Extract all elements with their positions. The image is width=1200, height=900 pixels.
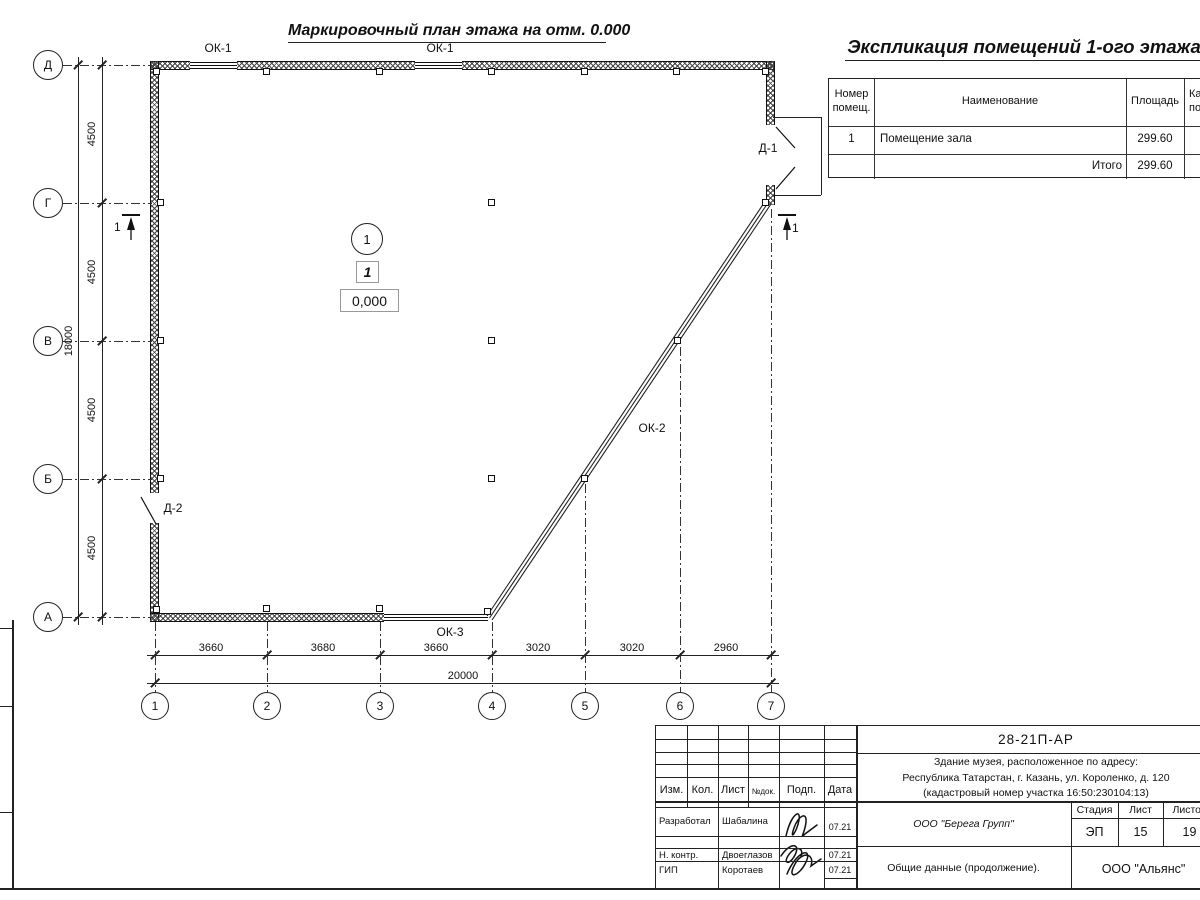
axis-line-b — [63, 479, 152, 480]
column-square — [488, 337, 495, 344]
axis-letter: А — [44, 610, 52, 624]
column-square — [153, 68, 160, 75]
dim-label: 3680 — [303, 642, 343, 654]
rev-header: Кол. — [687, 784, 718, 796]
rev-header: Лист — [718, 784, 748, 796]
address-line: (кадастровый номер участка 16:50:230104:… — [923, 787, 1149, 799]
window-label-ok3: ОК-3 — [428, 625, 472, 639]
address-line: Республика Татарстан, г. Казань, ул. Кор… — [902, 772, 1169, 784]
stage-label: Стадия — [1071, 804, 1118, 816]
doc-number: 28-21П-АР — [856, 732, 1200, 747]
column-square — [581, 475, 588, 482]
dim-label: 3660 — [416, 642, 456, 654]
axis-number: 6 — [677, 699, 684, 713]
room-number: 1 — [363, 232, 370, 247]
dim-label: 4500 — [86, 252, 98, 292]
tb-grid-line — [656, 764, 856, 765]
vestibule-wall — [821, 117, 822, 195]
column-square — [488, 475, 495, 482]
grid-line-2 — [267, 622, 268, 692]
glazed-wall-ok2 — [487, 200, 771, 620]
axis-bubble-row: Г — [33, 188, 63, 218]
grid-line-3 — [380, 622, 381, 692]
axis-line-v — [63, 341, 152, 342]
elevation-value: 0,000 — [352, 293, 387, 309]
doc-title: Общие данные (продолжение). — [856, 862, 1071, 874]
wall-bottom-segment — [150, 613, 384, 622]
signer-role: ГИП — [659, 865, 718, 876]
tb-grid-line — [656, 848, 856, 849]
column-square — [376, 68, 383, 75]
elevation-mark: 0,000 — [340, 289, 399, 312]
table-grid-line — [829, 126, 1200, 127]
col-header-area: Площадь — [1126, 95, 1184, 107]
rev-header: Изм. — [656, 784, 687, 796]
wall-top-segment — [462, 61, 774, 70]
axis-bubble-row: Б — [33, 464, 63, 494]
col-header-number: Номерпомещ. — [829, 87, 874, 115]
total-label: Итого — [874, 160, 1122, 172]
wall-left-segment — [150, 61, 159, 493]
window-label-ok1-b: ОК-1 — [418, 41, 462, 55]
column-square — [157, 199, 164, 206]
total-area: 299.60 — [1126, 160, 1184, 172]
dim-label: 3020 — [518, 642, 558, 654]
column-square — [157, 337, 164, 344]
column-square — [488, 199, 495, 206]
dim-line-left-total — [78, 57, 79, 625]
contractor-org: ООО "Альянс" — [1071, 862, 1200, 876]
rev-header: №док. — [748, 787, 779, 796]
signer-name: Двоеглазов — [722, 850, 779, 861]
column-square — [153, 606, 160, 613]
sheets-label: Листов — [1163, 804, 1200, 816]
dim-label: 2960 — [706, 642, 746, 654]
axis-bubble-col: 7 — [757, 692, 785, 720]
dim-label: 4500 — [86, 528, 98, 568]
axis-bubble-col: 6 — [666, 692, 694, 720]
column-square — [762, 68, 769, 75]
column-square — [581, 68, 588, 75]
axis-number: 3 — [377, 699, 384, 713]
axis-number: 7 — [768, 699, 775, 713]
door-d1-leaf — [776, 167, 795, 189]
tb-grid-line — [656, 807, 856, 808]
project-address: Здание музея, расположенное по адресу: Р… — [861, 755, 1200, 802]
stage-value: ЭП — [1071, 825, 1118, 839]
room-row-number: 1 — [829, 133, 874, 145]
room-number-boxed: 1 — [364, 264, 372, 280]
dim-label-total: 18000 — [63, 318, 75, 364]
frame-line — [12, 620, 14, 889]
grid-line-6 — [680, 347, 681, 692]
window-label-ok2: ОК-2 — [630, 421, 674, 435]
dim-label: 4500 — [86, 390, 98, 430]
tb-grid-line — [656, 861, 856, 862]
dim-line-bottom-segments — [147, 655, 779, 656]
axis-bubble-row: А — [33, 602, 63, 632]
tb-grid-line — [656, 836, 856, 837]
section-mark-label-left: 1 — [114, 220, 121, 234]
address-line: Здание музея, расположенное по адресу: — [934, 756, 1138, 768]
signer-role: Разработал — [659, 816, 718, 827]
col-header-name: Наименование — [874, 95, 1126, 107]
column-square — [484, 608, 491, 615]
signer-name: Шабалина — [722, 816, 779, 827]
axis-number: 4 — [489, 699, 496, 713]
column-square — [376, 605, 383, 612]
axis-bubble-row: Д — [33, 50, 63, 80]
tb-grid-line — [856, 846, 1200, 847]
signer-date: 07.21 — [824, 850, 856, 860]
tb-grid-line — [856, 753, 1200, 754]
dim-line-bottom-total — [147, 683, 779, 684]
axis-letter: Д — [44, 58, 52, 72]
frame-tick — [0, 628, 12, 629]
axis-bubble-row: В — [33, 326, 63, 356]
column-square — [673, 68, 680, 75]
sheet-label: Лист — [1118, 804, 1163, 816]
window-ok1-a — [190, 62, 237, 69]
dim-label: 4500 — [86, 114, 98, 154]
tb-grid-line — [824, 878, 856, 879]
title-block: Изм. Кол. Лист №док. Подп. Дата Разработ… — [655, 725, 1200, 889]
tb-grid-line — [1071, 818, 1200, 819]
window-ok3 — [384, 614, 488, 621]
grid-line-5 — [585, 484, 586, 692]
door-d2-leaf — [141, 497, 156, 524]
signer-name: Коротаев — [722, 865, 779, 876]
room-row-name: Помещение зала — [880, 133, 1120, 145]
tb-grid-line — [779, 726, 780, 890]
dim-label-total: 20000 — [438, 670, 488, 682]
explication-table: Номерпомещ. Наименование Площадь Капо 1 … — [828, 78, 1200, 178]
vestibule-wall — [773, 195, 821, 196]
tb-grid-line — [656, 739, 856, 740]
table-grid-line — [829, 154, 1200, 155]
column-square — [263, 605, 270, 612]
vestibule-wall — [773, 117, 821, 118]
column-square — [488, 68, 495, 75]
window-label-ok1-a: ОК-1 — [196, 41, 240, 55]
frame-tick — [0, 706, 12, 707]
axis-letter: В — [44, 334, 52, 348]
signer-date: 07.21 — [824, 865, 856, 875]
dim-label: 3020 — [612, 642, 652, 654]
door-label-d2: Д-2 — [155, 501, 191, 515]
design-org: ООО "Берега Групп" — [856, 818, 1071, 830]
door-label-d1: Д-1 — [750, 141, 786, 155]
rev-header: Подп. — [779, 784, 824, 796]
axis-bubble-col: 1 — [141, 692, 169, 720]
axis-number: 1 — [152, 699, 159, 713]
section-mark-label-right: 1 — [792, 221, 799, 235]
drawing-sheet: Маркировочный план этажа на отм. 0.000 Э… — [0, 0, 1200, 900]
axis-number: 2 — [264, 699, 271, 713]
explication-title: Экспликация помещений 1-ого этажа — [845, 36, 1200, 61]
axis-letter: Г — [45, 196, 52, 210]
frame-tick — [0, 812, 12, 813]
rev-header: Дата — [824, 784, 856, 796]
signer-date: 07.21 — [824, 822, 856, 832]
table-grid-line — [1184, 79, 1185, 179]
plan-title: Маркировочный план этажа на отм. 0.000 — [288, 22, 606, 43]
axis-letter: Б — [44, 472, 52, 486]
column-square — [762, 199, 769, 206]
door-leaf-lines — [141, 127, 795, 524]
col-header-category: Капо — [1189, 87, 1200, 115]
room-row-area: 299.60 — [1126, 133, 1184, 145]
signer-role: Н. контр. — [659, 850, 718, 861]
grid-line-4 — [492, 622, 493, 692]
grid-line-7 — [771, 209, 772, 692]
axis-bubble-col: 5 — [571, 692, 599, 720]
axis-bubble-col: 4 — [478, 692, 506, 720]
sheet-value: 15 — [1118, 825, 1163, 839]
dim-label: 3660 — [191, 642, 231, 654]
column-square — [674, 337, 681, 344]
room-number-bubble: 1 — [351, 223, 383, 255]
sheets-value: 19 — [1163, 825, 1200, 839]
axis-number: 5 — [582, 699, 589, 713]
column-square — [157, 475, 164, 482]
tb-grid-line — [718, 726, 719, 890]
room-number-box: 1 — [356, 261, 379, 283]
column-square — [263, 68, 270, 75]
tb-grid-line — [656, 777, 856, 778]
axis-bubble-col: 3 — [366, 692, 394, 720]
axis-line-g — [63, 203, 152, 204]
section-mark-left — [122, 215, 140, 240]
axis-bubble-col: 2 — [253, 692, 281, 720]
window-ok1-b — [415, 62, 462, 69]
tb-grid-line — [656, 752, 856, 753]
